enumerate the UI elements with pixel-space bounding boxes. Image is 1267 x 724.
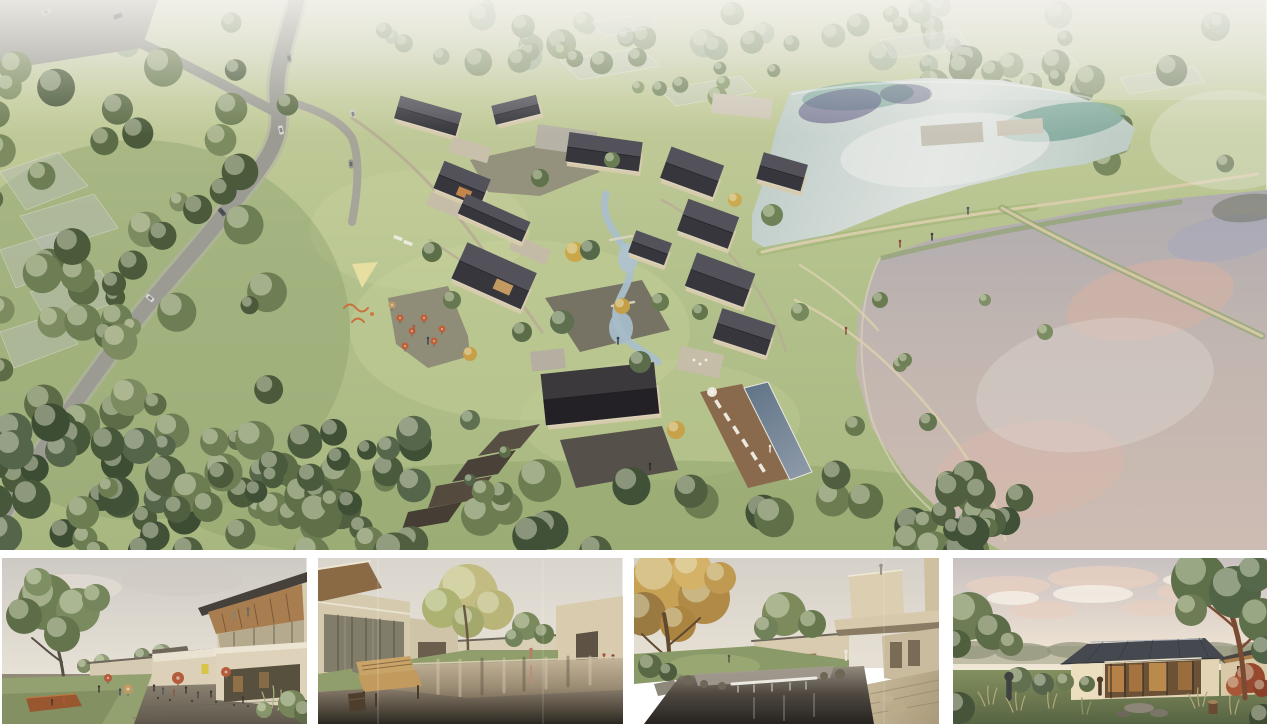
thumb-garden-pavilion-view [953,558,1267,724]
thumb-street-plaza-view [2,558,307,724]
aerial-site-rendering [0,0,1267,550]
architectural-presentation-board [0,0,1267,724]
thumb-waterfall-courtyard-view [634,558,939,724]
thumb-courtyard-pond-view [318,558,623,724]
thumbnail-row [0,558,1267,724]
